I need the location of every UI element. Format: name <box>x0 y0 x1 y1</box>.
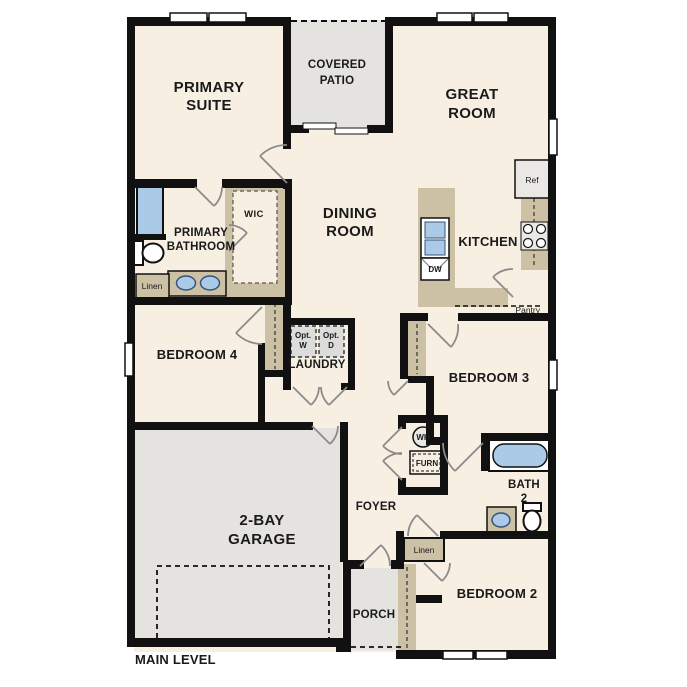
covered-patio-label: COVERED <box>308 59 366 71</box>
primary-suite-label: SUITE <box>186 97 232 114</box>
burner-icon <box>524 225 533 234</box>
dishwasher-label: DW <box>428 265 442 274</box>
bedroom4-label: BEDROOM 4 <box>157 347 238 362</box>
water-heater-label: WH <box>416 433 430 442</box>
dining-room-label: DINING <box>323 205 377 222</box>
kitchen-counter-lower <box>521 248 548 270</box>
porch-label: PORCH <box>353 609 396 621</box>
bath2-sink-icon <box>492 513 510 527</box>
sliding-door-icon <box>303 123 336 129</box>
window-icon <box>549 360 557 390</box>
window-icon <box>474 13 508 22</box>
main-level-title: MAIN LEVEL <box>135 652 216 667</box>
sliding-door-icon <box>335 128 368 134</box>
floor-plan-page: PRIMARY SUITE COVERED PATIO GREAT ROOM P… <box>0 0 687 687</box>
covered-patio-floor <box>291 20 385 127</box>
vanity-sink-icon <box>201 276 220 290</box>
toilet-icon <box>524 511 541 532</box>
linen-bath-label: Linen <box>142 281 163 291</box>
window-icon <box>437 13 472 22</box>
burner-icon <box>537 239 546 248</box>
kitchen-counter-leg <box>418 288 508 307</box>
floor-plan-drawing: PRIMARY SUITE COVERED PATIO GREAT ROOM P… <box>0 0 687 687</box>
bedroom3-label: BEDROOM 3 <box>449 370 530 385</box>
bath2-label: BATH <box>508 479 540 491</box>
opt-washer-label: W <box>299 341 307 350</box>
great-room-label: ROOM <box>448 105 496 122</box>
refrigerator-label: Ref <box>525 175 539 185</box>
opt-washer-label: Opt. <box>295 331 311 340</box>
opt-dryer-label: D <box>328 341 334 350</box>
opt-dryer-label: Opt. <box>323 331 339 340</box>
linen-hall-label: Linen <box>414 545 435 555</box>
window-icon <box>476 651 507 659</box>
garage-label: 2-BAY <box>239 512 284 529</box>
great-room-label: GREAT <box>446 86 499 103</box>
bath2-label: 2 <box>521 493 528 505</box>
kitchen-label: KITCHEN <box>458 234 517 249</box>
primary-bathroom-label: PRIMARY <box>174 227 228 239</box>
shower-icon <box>137 183 163 236</box>
burner-icon <box>524 239 533 248</box>
covered-patio-label: PATIO <box>320 75 354 87</box>
toilet-icon <box>143 244 164 263</box>
foyer-label: FOYER <box>356 501 397 513</box>
wic-label: WIC <box>244 209 264 220</box>
vanity-sink-icon <box>177 276 196 290</box>
wic-shelving-dashed <box>233 191 277 283</box>
window-icon <box>209 13 246 22</box>
furnace-label: FURN <box>416 459 438 468</box>
sink-basin-icon <box>425 240 445 255</box>
pantry-label: Pantry <box>515 305 540 315</box>
burner-icon <box>537 225 546 234</box>
shower-wall <box>134 234 166 240</box>
window-icon <box>125 343 133 376</box>
dining-room-label: ROOM <box>326 223 374 240</box>
laundry-label: LAUNDRY <box>288 359 345 371</box>
window-icon <box>549 119 557 155</box>
bathtub-icon <box>493 444 547 467</box>
window-icon <box>170 13 207 22</box>
window-icon <box>443 651 473 659</box>
primary-bathroom-label: BATHROOM <box>167 241 235 253</box>
primary-suite-label: PRIMARY <box>174 79 245 96</box>
garage-label: GARAGE <box>228 531 296 548</box>
sink-basin-icon <box>425 222 445 238</box>
bedroom2-label: BEDROOM 2 <box>457 586 538 601</box>
